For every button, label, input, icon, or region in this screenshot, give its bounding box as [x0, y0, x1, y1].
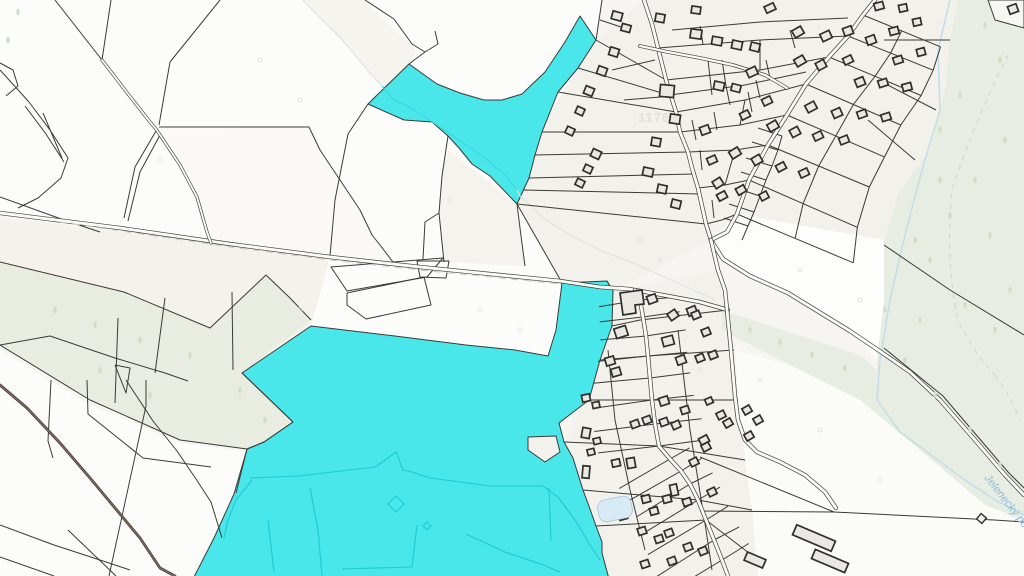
svg-text:1176: 1176: [638, 110, 670, 125]
